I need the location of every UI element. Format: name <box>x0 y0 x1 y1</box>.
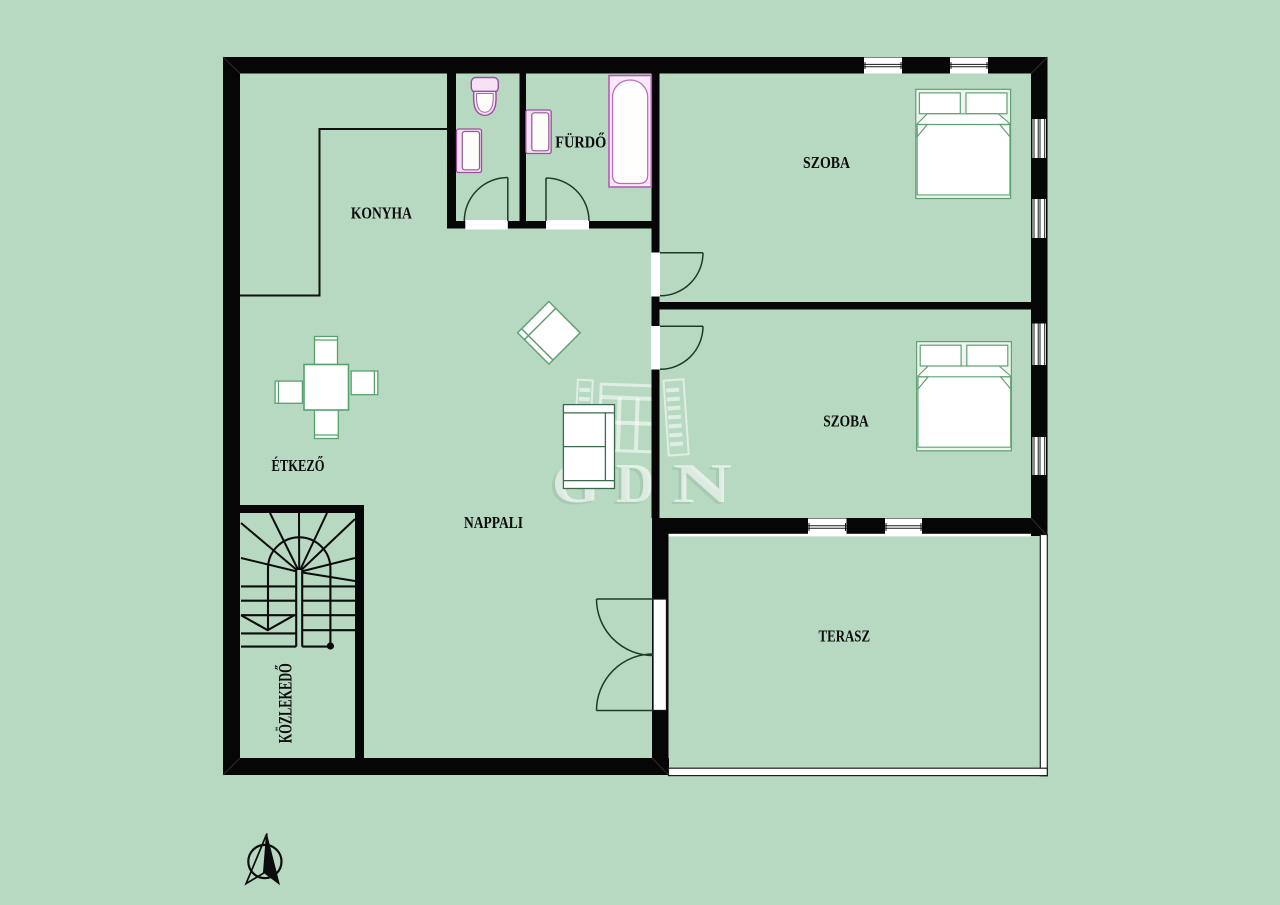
svg-text:KONYHA: KONYHA <box>351 203 412 222</box>
svg-text:SZOBA: SZOBA <box>823 411 869 430</box>
svg-text:FÜRDŐ: FÜRDŐ <box>555 132 606 151</box>
svg-text:D: D <box>616 453 655 515</box>
svg-text:N: N <box>673 453 732 515</box>
svg-text:SZOBA: SZOBA <box>803 153 850 172</box>
svg-text:KÖZLEKEDŐ: KÖZLEKEDŐ <box>274 663 296 743</box>
svg-text:ÉTKEZŐ: ÉTKEZŐ <box>272 456 325 475</box>
svg-text:NAPPALI: NAPPALI <box>464 513 523 532</box>
svg-text:TERASZ: TERASZ <box>819 626 871 645</box>
